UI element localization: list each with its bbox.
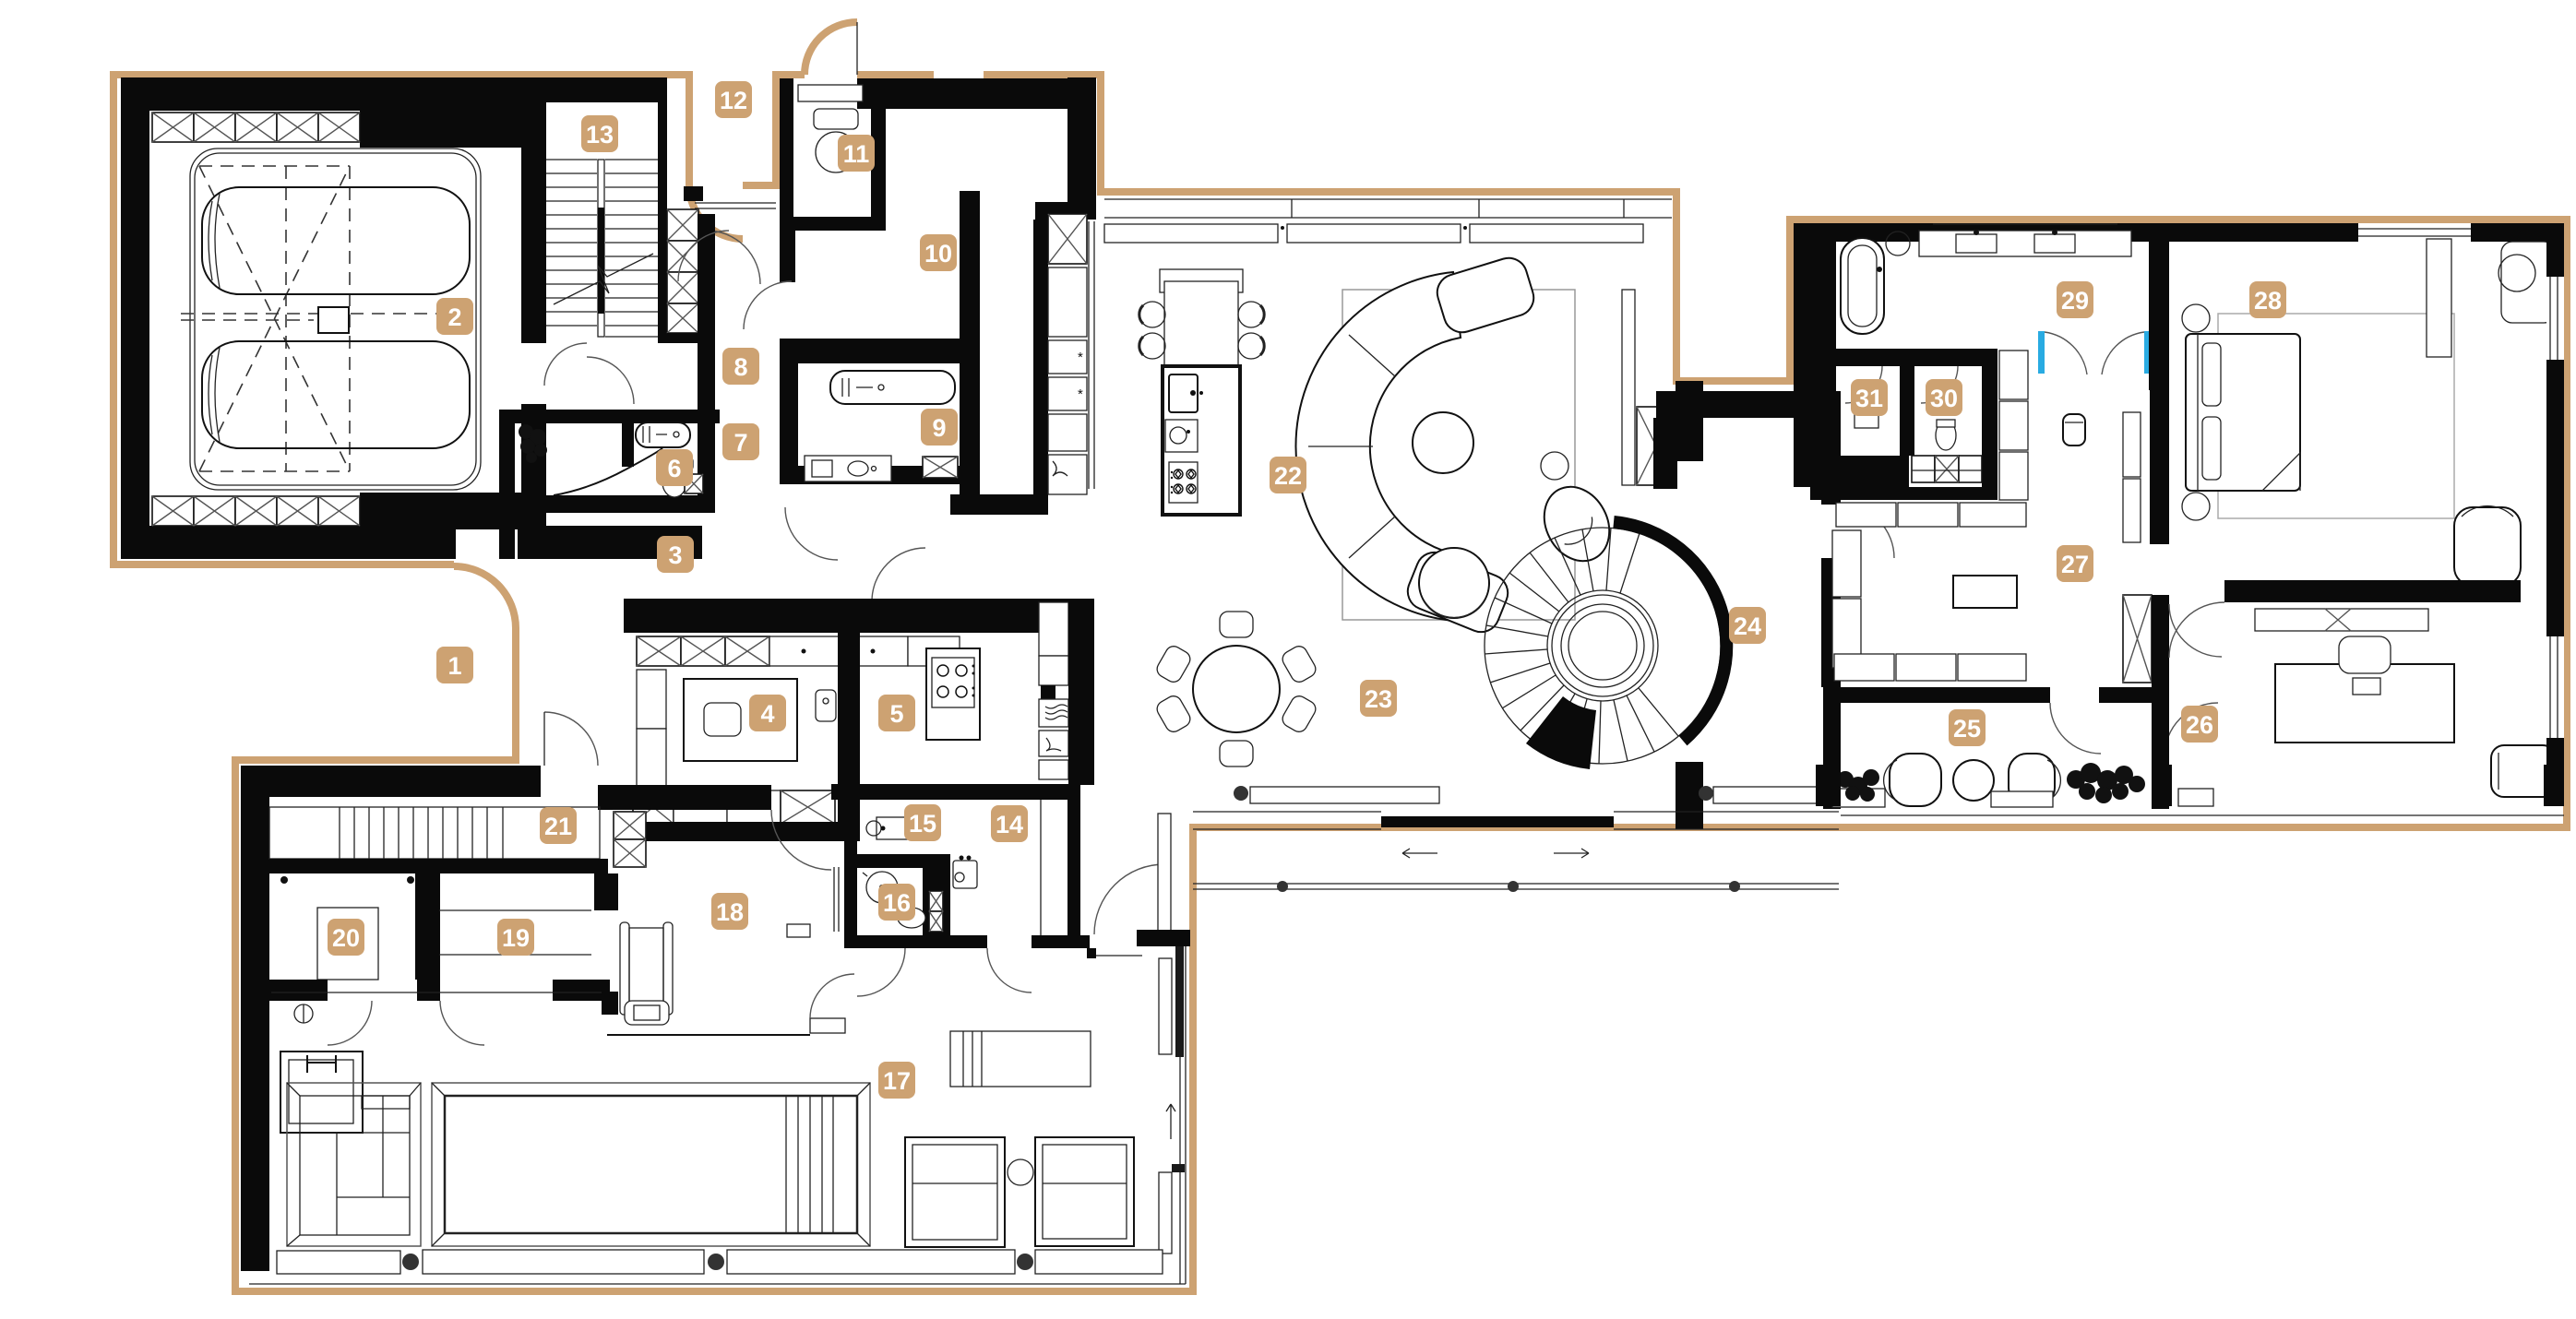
svg-text:8: 8 xyxy=(733,353,747,381)
svg-text:19: 19 xyxy=(502,924,530,952)
svg-text:16: 16 xyxy=(883,889,911,917)
svg-text:3: 3 xyxy=(668,541,682,569)
svg-text:12: 12 xyxy=(720,87,747,114)
svg-text:27: 27 xyxy=(2061,551,2089,578)
svg-text:5: 5 xyxy=(889,700,903,728)
svg-text:4: 4 xyxy=(760,700,774,728)
svg-text:2: 2 xyxy=(447,303,461,331)
svg-text:15: 15 xyxy=(909,810,936,838)
svg-text:11: 11 xyxy=(843,140,870,168)
svg-text:28: 28 xyxy=(2254,287,2282,315)
svg-text:14: 14 xyxy=(996,811,1023,838)
svg-text:1: 1 xyxy=(447,652,461,680)
svg-text:26: 26 xyxy=(2186,711,2213,739)
svg-text:22: 22 xyxy=(1274,462,1302,490)
svg-text:18: 18 xyxy=(716,898,744,926)
svg-text:29: 29 xyxy=(2061,287,2089,315)
svg-text:30: 30 xyxy=(1930,385,1958,412)
svg-text:6: 6 xyxy=(667,455,681,482)
svg-text:20: 20 xyxy=(332,924,360,952)
svg-text:17: 17 xyxy=(883,1067,911,1095)
svg-text:*: * xyxy=(1078,350,1083,365)
svg-text:9: 9 xyxy=(932,414,946,442)
svg-text:25: 25 xyxy=(1953,715,1981,743)
svg-text:23: 23 xyxy=(1365,685,1392,713)
svg-text:21: 21 xyxy=(544,813,572,840)
svg-text:10: 10 xyxy=(924,240,952,267)
svg-text:24: 24 xyxy=(1734,612,1761,640)
svg-text:7: 7 xyxy=(733,429,747,457)
svg-text:13: 13 xyxy=(586,121,614,149)
svg-text:31: 31 xyxy=(1855,385,1883,412)
svg-text:*: * xyxy=(1078,386,1083,402)
